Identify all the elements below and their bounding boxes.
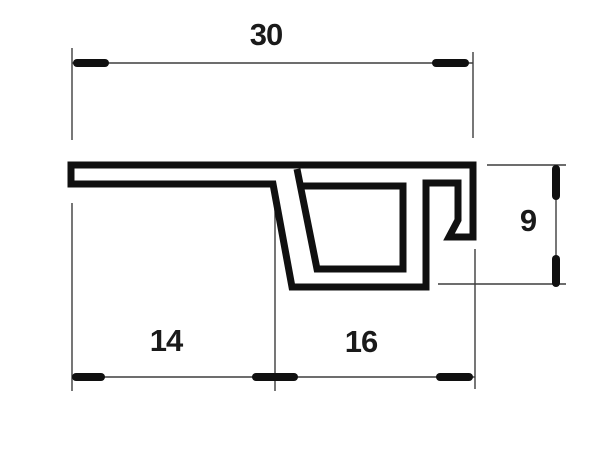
technical-drawing-canvas: 30 14 16 9	[0, 0, 600, 450]
dimension-label-bottom-left-width: 14	[150, 323, 182, 359]
dimension-label-right-height: 9	[520, 203, 536, 239]
profile-cross-section-drawing	[0, 0, 600, 450]
dimension-label-top-width: 30	[250, 17, 282, 53]
dimension-label-bottom-right-width: 16	[345, 324, 377, 360]
